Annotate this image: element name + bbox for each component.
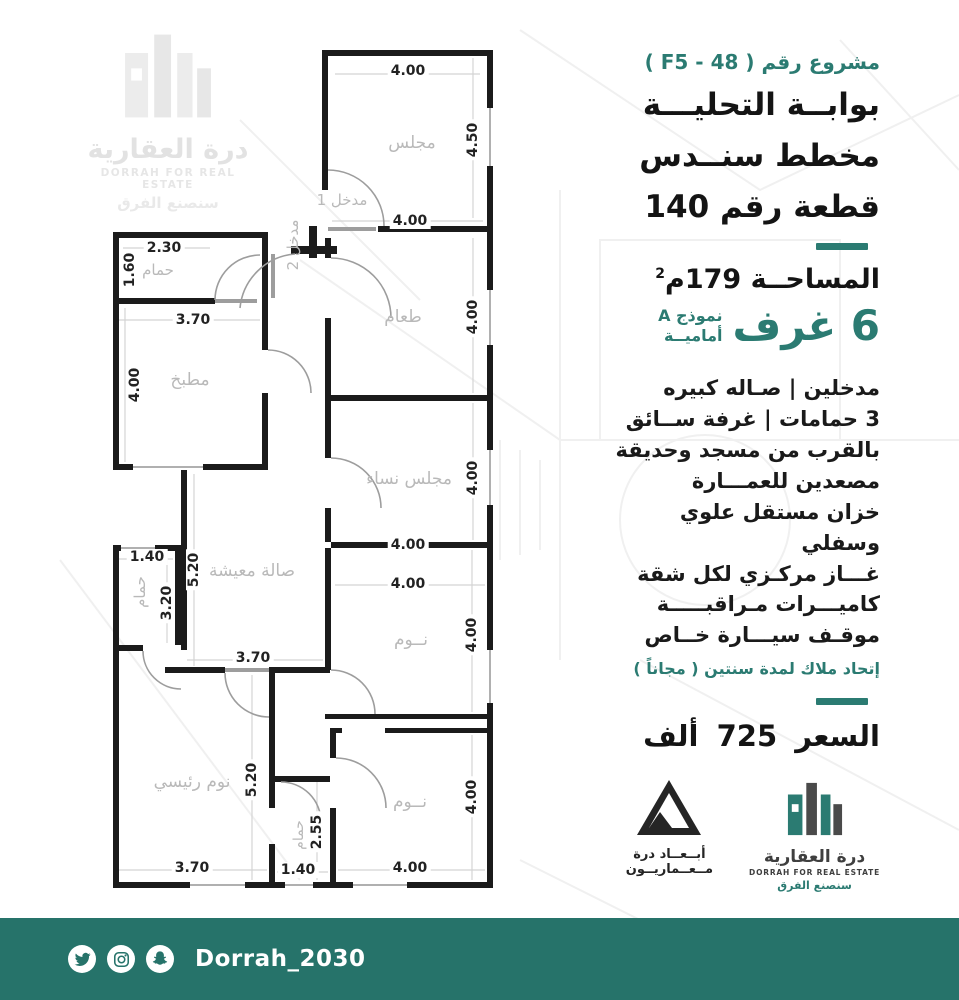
title-line-3: قطعة رقم 140 xyxy=(606,182,880,233)
model-info: نموذج A أماميــة xyxy=(658,306,722,346)
feature-item: مصعدين للعمـــارة xyxy=(606,466,880,497)
dim-living-height: 5.20 xyxy=(186,550,202,591)
feature-item: بالقرب من مسجد وحديقة xyxy=(606,435,880,466)
features-list: مدخلين | صـاله كبيره 3 حمامات | غرفة ســ… xyxy=(606,373,880,651)
floor-plan-drawing xyxy=(95,38,499,890)
twitter-icon[interactable] xyxy=(68,945,96,973)
room-label-dining: طعام xyxy=(384,307,421,327)
footer-bar: Dorrah_2030 xyxy=(0,918,959,1000)
dim-women-right: 4.00 xyxy=(465,458,481,499)
architect-logo: أبــعــاد درة مــعــماريــون xyxy=(626,779,713,877)
dim-kitchen-height: 4.00 xyxy=(127,365,143,406)
feature-item: كاميـــرات مـراقبـــــة xyxy=(606,589,880,620)
rooms-model-row: 6 غرف نموذج A أماميــة xyxy=(606,305,880,347)
dim-bath-bottom-height: 2.55 xyxy=(309,812,325,853)
triangle-logo-icon xyxy=(636,779,702,837)
room-label-bath-top: حمام xyxy=(142,261,174,279)
room-label-bath-bottom: حمام xyxy=(291,820,307,850)
dim-majlis-bottom: 4.00 xyxy=(390,213,431,229)
teal-divider xyxy=(816,243,868,250)
floor-plan: مجلس طعام مجلس نساء نــوم نــوم مطبخ حما… xyxy=(95,38,499,890)
architect-name-1: أبــعــاد درة xyxy=(626,847,713,862)
dorrah-name-ar: درة العقارية xyxy=(749,847,880,867)
dim-bedroom1-right: 4.00 xyxy=(464,615,480,656)
area-superscript: 2 xyxy=(655,266,665,282)
poster: درة العقارية DORRAH FOR REAL ESTATE سنصن… xyxy=(0,0,959,1000)
feature-item: موقـف سيـــارة خــاص xyxy=(606,620,880,651)
feature-item: مدخلين | صـاله كبيره xyxy=(606,373,880,404)
model-line-2: أماميــة xyxy=(658,326,722,346)
door-sills xyxy=(215,227,376,672)
room-label-bedroom-2: نــوم xyxy=(393,792,427,812)
project-number: مشروع رقم ( F5 - 48 ) xyxy=(606,50,880,74)
social-handle: Dorrah_2030 xyxy=(195,946,366,972)
dim-bath-left-height: 3.20 xyxy=(159,583,175,624)
dim-women-bottom: 4.00 xyxy=(388,537,429,553)
model-line-1: نموذج A xyxy=(658,306,722,326)
feature-item: 3 حمامات | غرفة ســائق xyxy=(606,404,880,435)
dim-bath-left-width: 1.40 xyxy=(127,549,168,565)
room-label-bedroom-1: نــوم xyxy=(394,630,428,650)
title-line-2: مخطط سنــدس xyxy=(606,131,880,182)
teal-divider-2 xyxy=(816,698,868,705)
room-label-living: صالة معيشة xyxy=(209,561,295,581)
dim-bedroom2-bottom: 4.00 xyxy=(390,860,431,876)
dim-majlis-right: 4.50 xyxy=(465,120,481,161)
snapchat-icon[interactable] xyxy=(146,945,174,973)
dim-master-width: 3.70 xyxy=(172,860,213,876)
area-line: المساحــة 179م2 xyxy=(606,264,880,295)
dim-bedroom2-right: 4.00 xyxy=(464,777,480,818)
price-line: السعر 725 ألف xyxy=(606,719,880,753)
windows xyxy=(121,108,493,888)
dim-bath-top-height: 1.60 xyxy=(122,250,138,291)
logos-row: أبــعــاد درة مــعــماريــون درة العقاري… xyxy=(606,779,880,892)
architect-name-2: مــعــماريــون xyxy=(626,862,713,877)
feature-item: خزان مستقل علوي وسفلي xyxy=(606,497,880,559)
dim-kitchen-width: 3.70 xyxy=(173,312,214,328)
label-entrance-2: مدخل 2 xyxy=(284,220,302,271)
rooms-count: 6 غرف xyxy=(733,305,880,347)
instagram-icon[interactable] xyxy=(107,945,135,973)
room-label-women-majlis: مجلس نساء xyxy=(366,469,452,489)
dim-majlis-top: 4.00 xyxy=(388,63,429,79)
feature-item: غـــاز مركـزي لكل شقة xyxy=(606,559,880,590)
dim-dining-right: 4.00 xyxy=(465,297,481,338)
room-label-majlis: مجلس xyxy=(388,133,435,153)
dorrah-building-icon xyxy=(786,779,844,839)
dorrah-name-en: DORRAH FOR REAL ESTATE xyxy=(749,868,880,877)
dorrah-logo: درة العقارية DORRAH FOR REAL ESTATE سنصن… xyxy=(749,779,880,892)
dim-master-height: 5.20 xyxy=(244,760,260,801)
title-line-1: بوابــة التحليـــة xyxy=(606,80,880,131)
details-panel: مشروع رقم ( F5 - 48 ) بوابــة التحليـــة… xyxy=(606,50,880,892)
dim-bedroom1-top: 4.00 xyxy=(388,576,429,592)
dorrah-tagline: سنصنع الفرق xyxy=(749,879,880,892)
dim-bath-bottom-width: 1.40 xyxy=(278,862,319,878)
room-label-bath-left: حمام xyxy=(131,576,149,608)
area-text: المساحــة 179م xyxy=(665,264,880,295)
dim-living-width: 3.70 xyxy=(233,650,274,666)
dim-bath-top-width: 2.30 xyxy=(144,240,185,256)
room-label-kitchen: مطبخ xyxy=(170,370,209,390)
hoa-note: إتحاد ملاك لمدة سنتين ( مجاناً ) xyxy=(606,659,880,678)
label-entrance-1: مدخل 1 xyxy=(317,191,368,209)
room-label-master-bedroom: نوم رئيسي xyxy=(154,772,231,792)
